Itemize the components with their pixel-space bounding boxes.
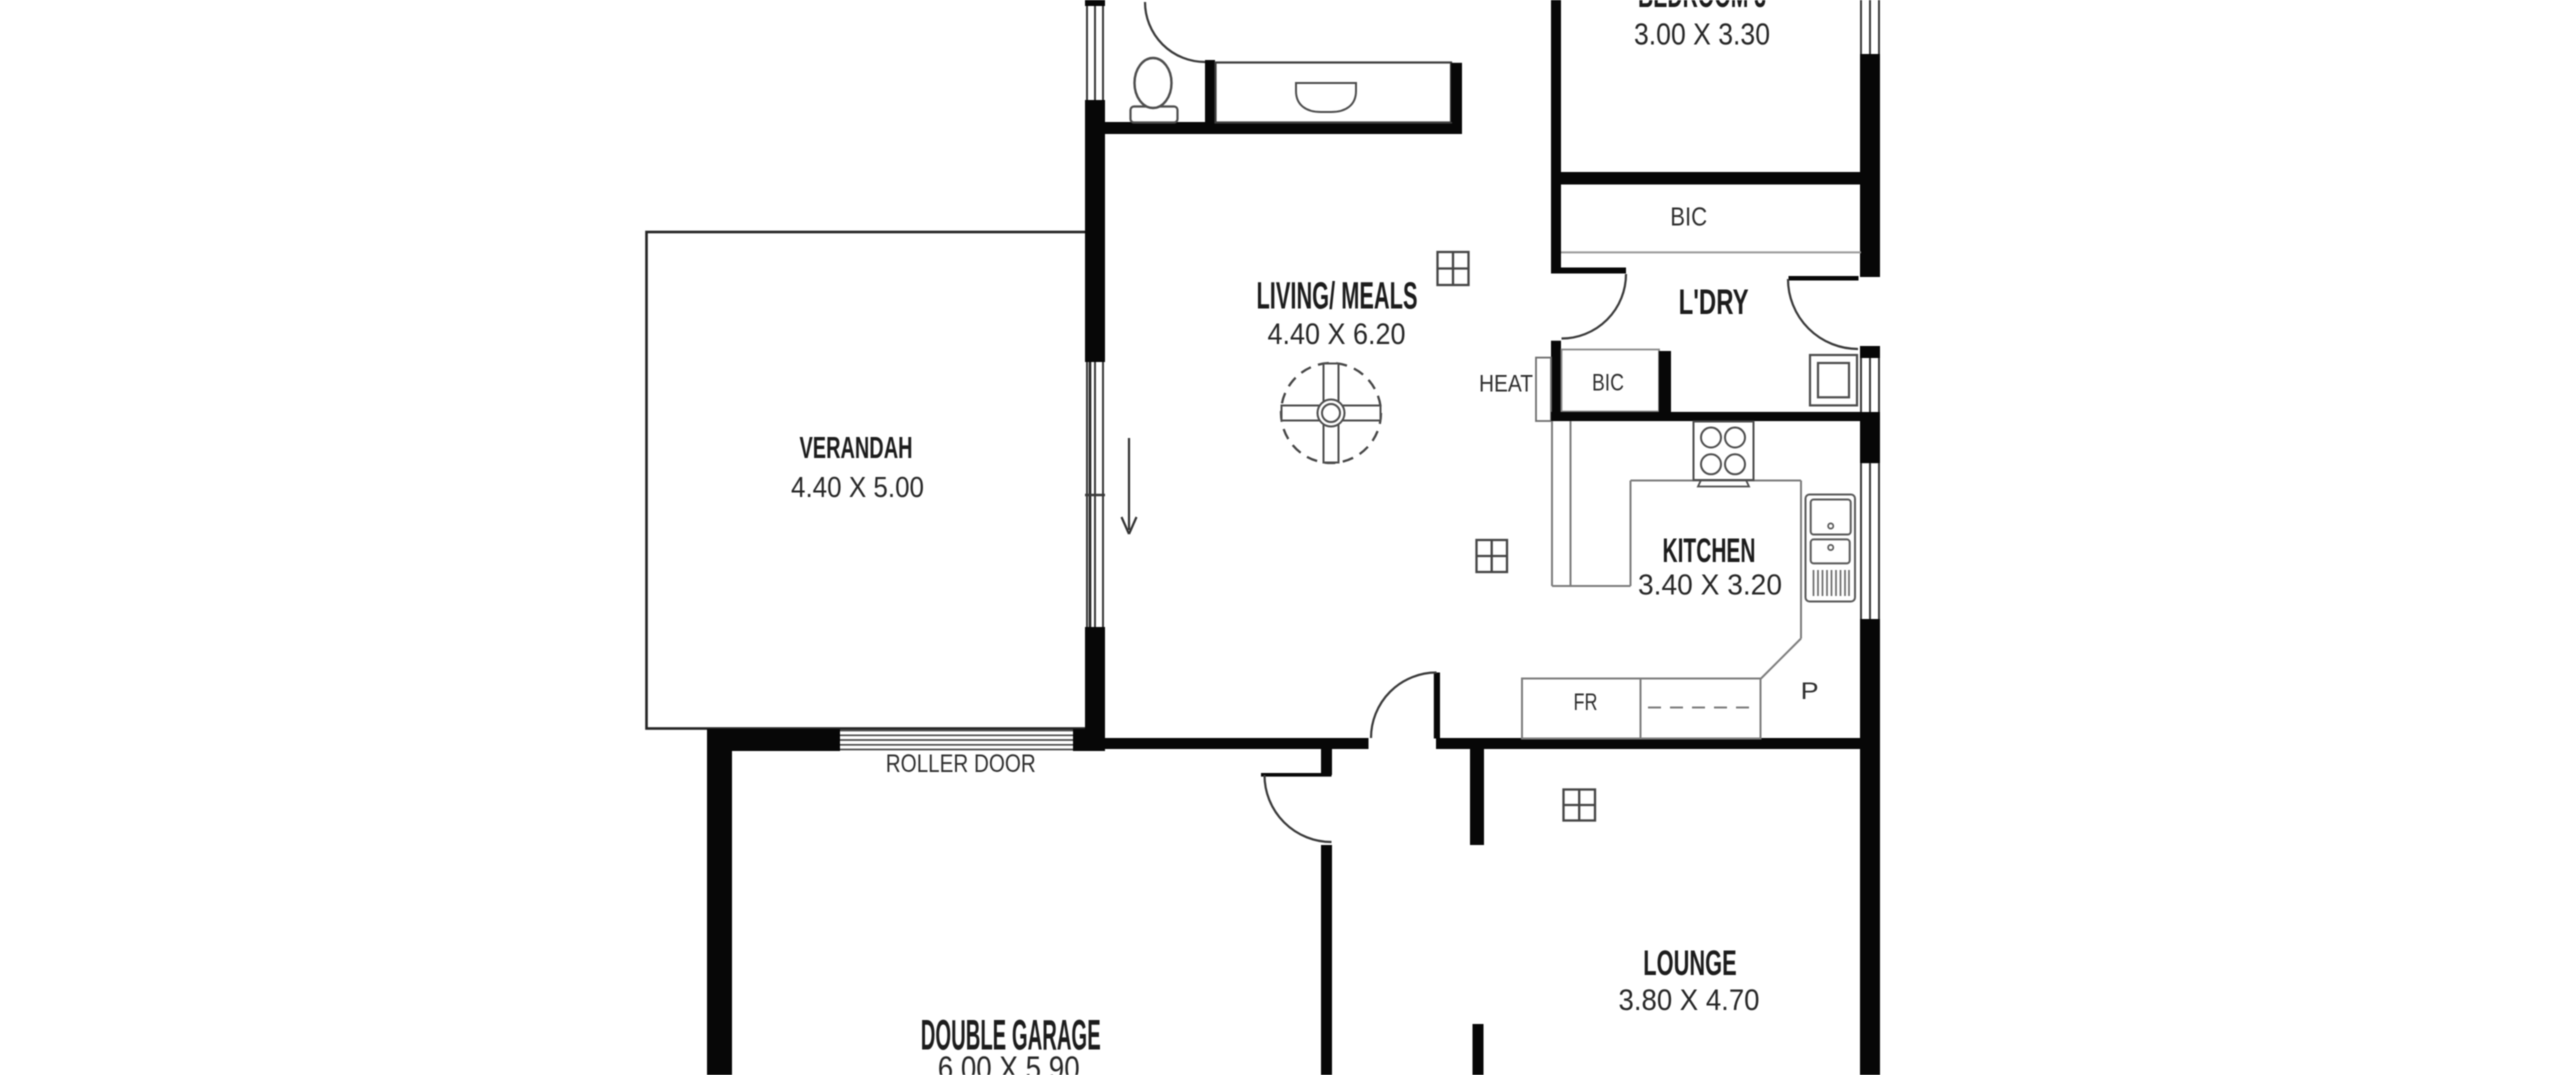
svg-text:4.40 X 6.20: 4.40 X 6.20 — [1268, 318, 1406, 351]
svg-text:BEDROOM 3: BEDROOM 3 — [1638, 0, 1766, 15]
svg-text:FR: FR — [1574, 689, 1598, 716]
svg-text:3.40 X 3.20: 3.40 X 3.20 — [1638, 570, 1782, 602]
svg-text:ROLLER DOOR: ROLLER DOOR — [886, 750, 1036, 778]
svg-text:4.40 X 5.00: 4.40 X 5.00 — [791, 472, 924, 504]
svg-text:L'DRY: L'DRY — [1679, 283, 1749, 322]
svg-text:HEAT: HEAT — [1479, 370, 1533, 397]
svg-text:3.80 X 4.70: 3.80 X 4.70 — [1619, 984, 1760, 1017]
svg-text:6.00 X 5.90: 6.00 X 5.90 — [938, 1050, 1080, 1075]
svg-text:P: P — [1801, 678, 1819, 705]
svg-text:LOUNGE: LOUNGE — [1643, 944, 1736, 983]
svg-text:BIC: BIC — [1670, 202, 1707, 232]
svg-text:KITCHEN: KITCHEN — [1663, 532, 1756, 570]
svg-text:LIVING/ MEALS: LIVING/ MEALS — [1257, 275, 1418, 317]
svg-text:3.00 X 3.30: 3.00 X 3.30 — [1634, 17, 1770, 52]
svg-text:BIC: BIC — [1592, 369, 1624, 396]
svg-text:VERANDAH: VERANDAH — [800, 430, 913, 465]
